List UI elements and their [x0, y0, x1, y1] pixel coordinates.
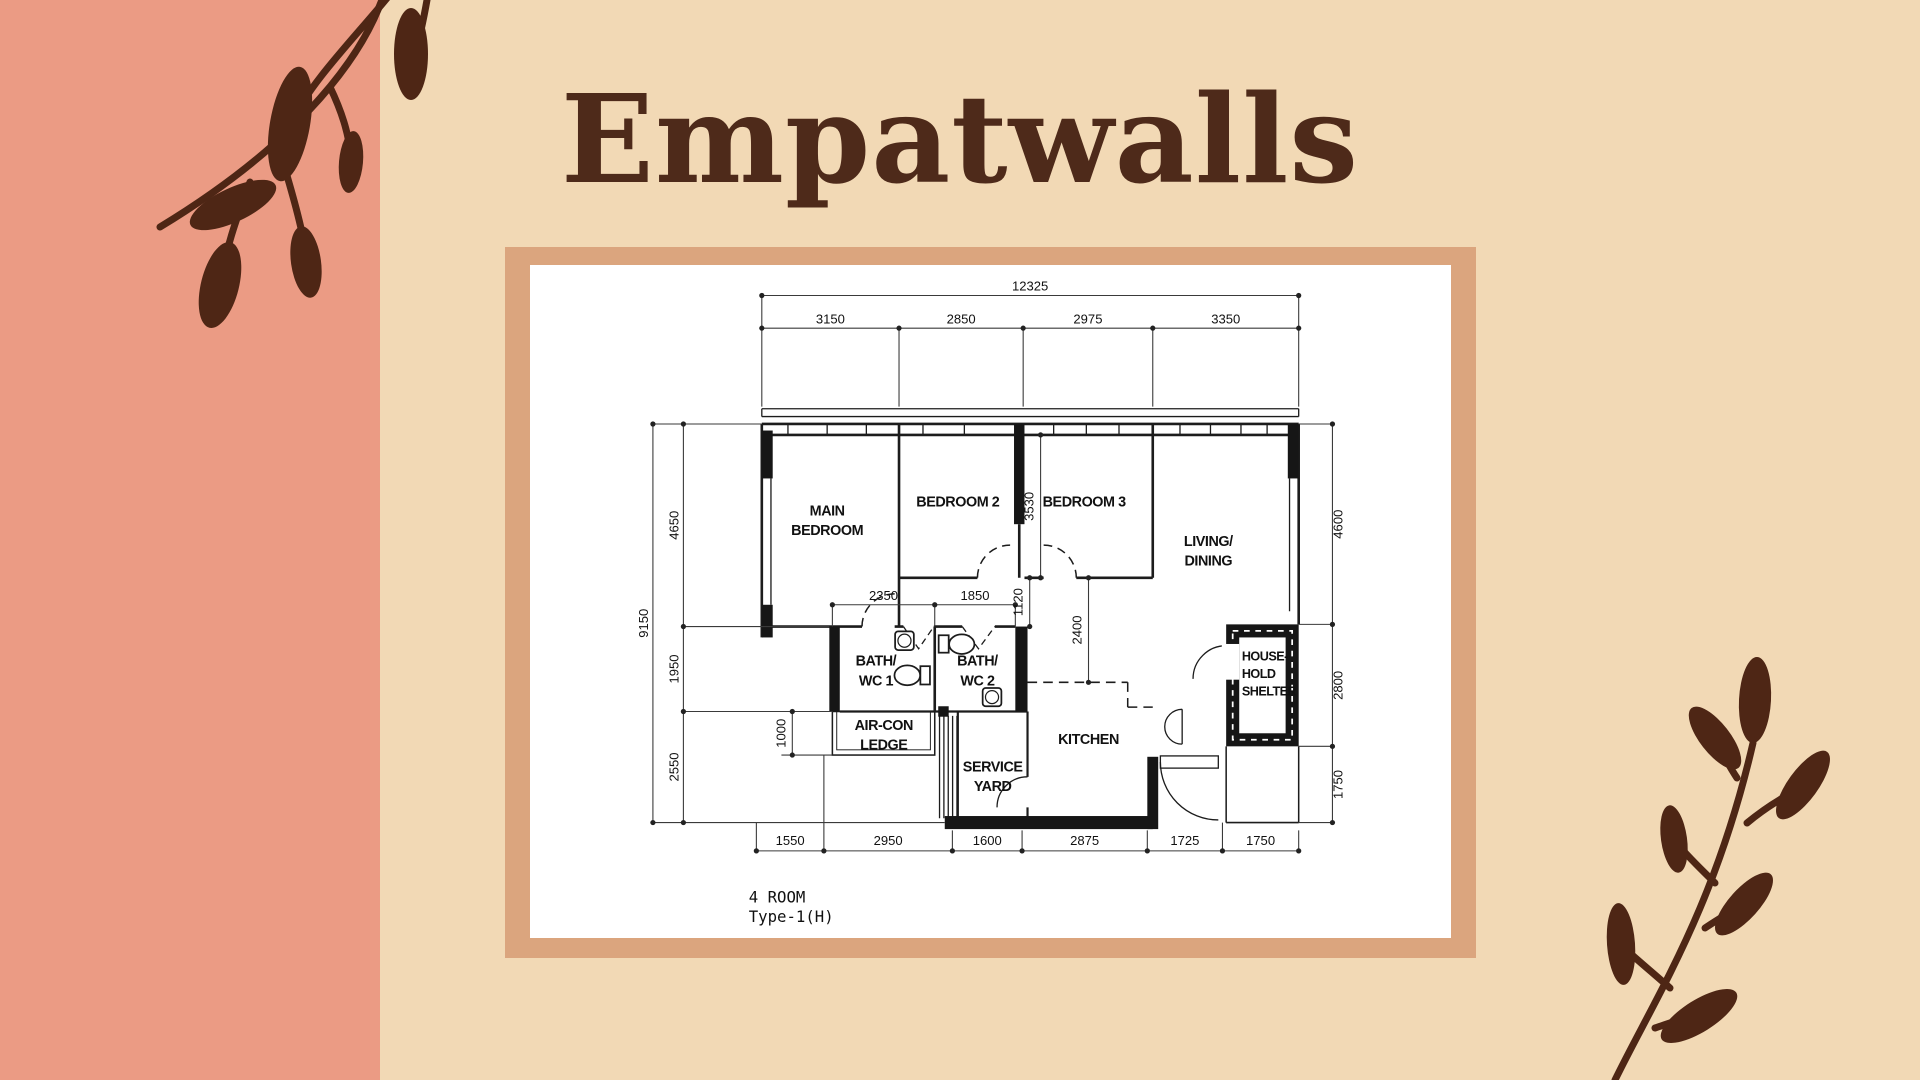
room-label-kitchen: KITCHEN	[1058, 732, 1119, 748]
page-background: Empatwalls	[0, 0, 1920, 1080]
plan-type-line1: 4 ROOM	[749, 887, 806, 906]
room-label-bath2-2: WC 2	[960, 673, 995, 689]
dim-bottom-3: 1600	[973, 833, 1002, 848]
dim-right-2: 2800	[1330, 671, 1345, 700]
room-label-shelter-2: HOLD	[1242, 667, 1276, 681]
dim-right-1: 4600	[1330, 510, 1345, 539]
dim-left-total: 9150	[636, 609, 651, 638]
room-label-aircon-1: AIR-CON	[855, 718, 913, 734]
room-label-shelter-3: SHELTER	[1242, 684, 1297, 698]
room-label-main-bedroom-2: BEDROOM	[791, 523, 863, 539]
dim-top-total: 12325	[1012, 279, 1048, 294]
room-label-service-1: SERVICE	[963, 760, 1024, 776]
plan-footer: 4 ROOM Type-1(H)	[749, 887, 834, 926]
dim-ledge-depth: 1000	[773, 719, 788, 748]
room-label-shelter-1: HOUSE-	[1242, 650, 1288, 664]
room-label-bath2-1: BATH/	[957, 654, 998, 670]
dim-bedroom3-depth: 3530	[1022, 492, 1037, 521]
room-label-aircon-2: LEDGE	[860, 737, 908, 753]
floorplan-card: 12325 3150 2850 2975 3350 9150 4650 1950…	[530, 265, 1451, 938]
room-label-bath1-2: WC 1	[859, 673, 894, 689]
floorplan-frame: 12325 3150 2850 2975 3350 9150 4650 1950…	[505, 247, 1476, 958]
dim-bottom-6: 1750	[1246, 833, 1275, 848]
dim-top-4: 3350	[1211, 311, 1240, 326]
dim-bottom-5: 1725	[1170, 833, 1199, 848]
dim-right-3: 1750	[1330, 770, 1345, 799]
room-label-bath1-1: BATH/	[856, 654, 897, 670]
dim-bottom-2: 2950	[874, 833, 903, 848]
room-label-living-2: DINING	[1184, 554, 1232, 570]
page-title: Empatwalls	[0, 78, 1920, 200]
dim-left-1: 4650	[667, 511, 682, 540]
dim-corridor: 1120	[1011, 588, 1026, 616]
room-label-service-2: YARD	[974, 779, 1012, 795]
dim-bottom-4: 2875	[1070, 833, 1099, 848]
dim-bath1-width: 2350	[869, 588, 898, 603]
branch-bottom-right-icon	[1595, 628, 1920, 1080]
dim-left-2: 1950	[667, 655, 682, 684]
dim-top-1: 3150	[816, 311, 845, 326]
dim-bottom-1: 1550	[776, 833, 805, 848]
plan-type-line2: Type-1(H)	[749, 907, 834, 926]
dim-top-3: 2975	[1073, 311, 1102, 326]
room-label-main-bedroom-1: MAIN	[810, 503, 845, 519]
floorplan-drawing: 12325 3150 2850 2975 3350 9150 4650 1950…	[530, 265, 1451, 938]
dim-left-3: 2550	[667, 753, 682, 782]
dim-bath2-width: 1850	[961, 588, 990, 603]
room-label-bedroom3: BEDROOM 3	[1043, 495, 1126, 511]
dim-kitchen-offset: 2400	[1070, 616, 1085, 645]
room-label-living-1: LIVING/	[1184, 534, 1233, 550]
room-label-bedroom2: BEDROOM 2	[916, 495, 999, 511]
dim-top-2: 2850	[947, 311, 976, 326]
